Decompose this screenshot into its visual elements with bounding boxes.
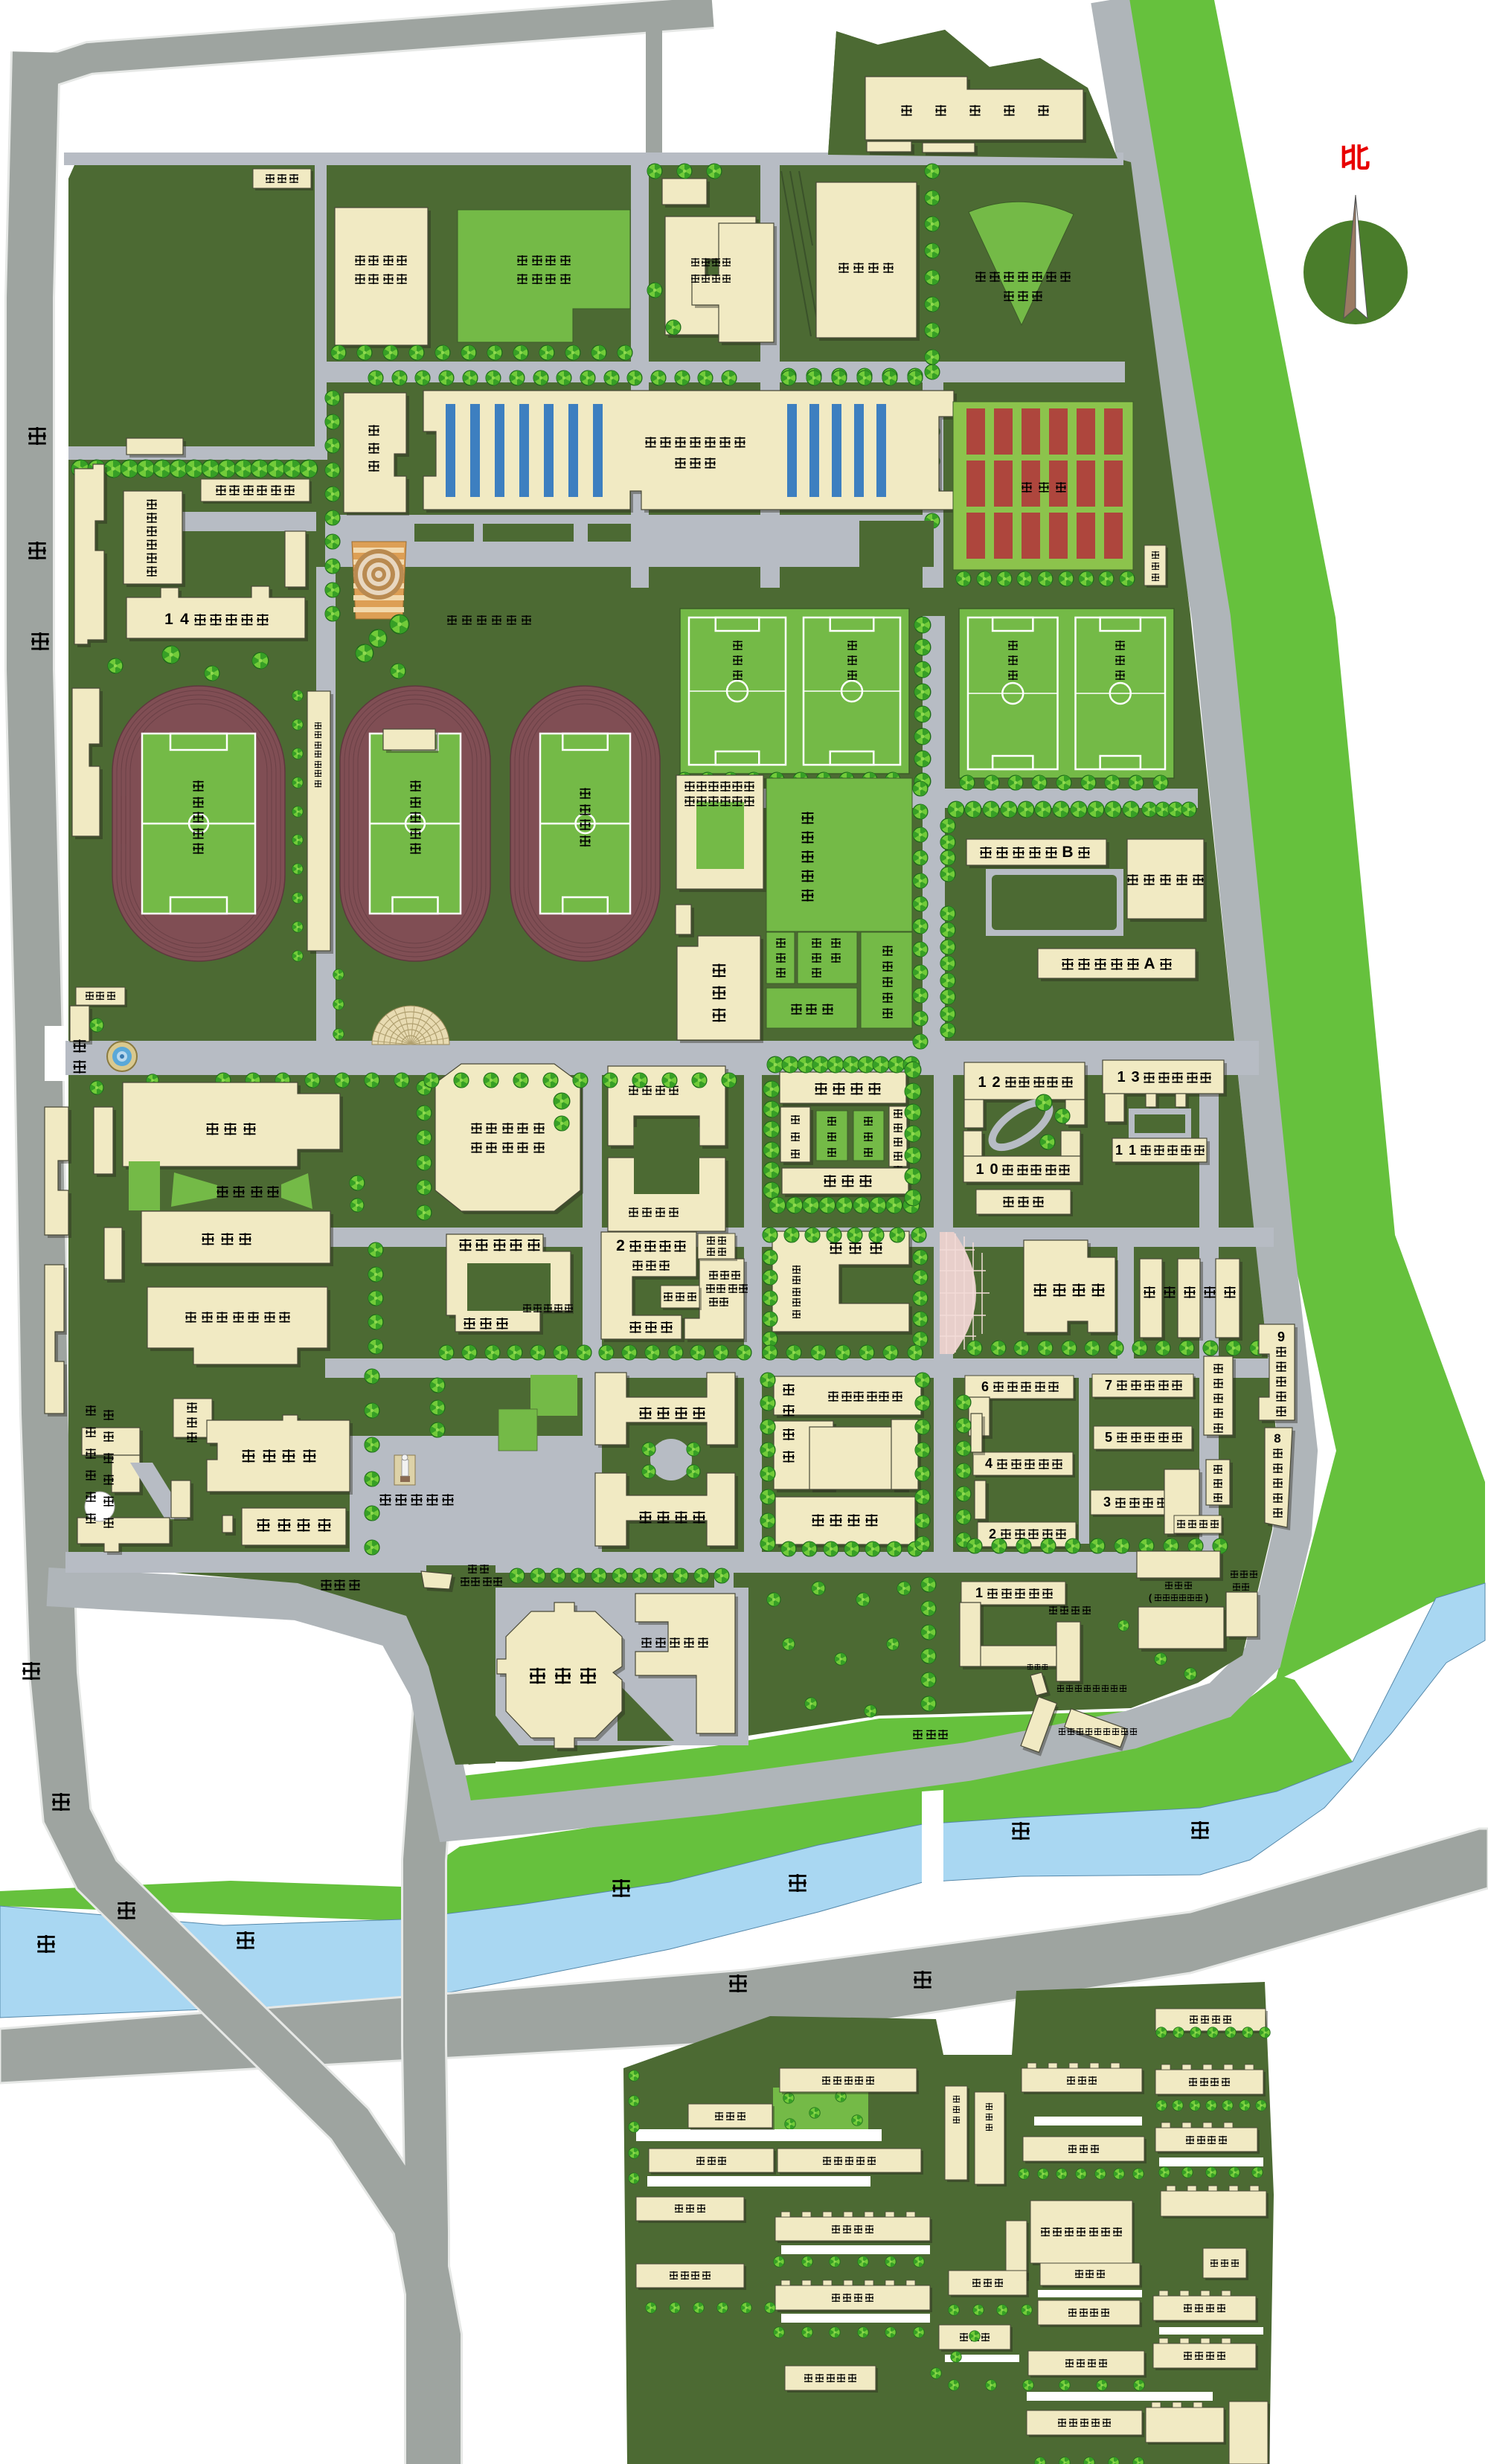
svg-text:1: 1	[1115, 1143, 1123, 1158]
svg-text:4: 4	[985, 1456, 992, 1471]
svg-text:3: 3	[1131, 1069, 1139, 1085]
svg-text:1: 1	[975, 1585, 983, 1600]
svg-text:0: 0	[990, 1161, 998, 1178]
svg-text:A: A	[1144, 955, 1155, 972]
svg-text:2: 2	[616, 1237, 625, 1254]
svg-text:1: 1	[978, 1074, 986, 1091]
svg-text:B: B	[1062, 844, 1073, 861]
svg-text:8: 8	[1274, 1431, 1280, 1446]
svg-text:): )	[1205, 1592, 1208, 1603]
svg-text:3: 3	[1103, 1495, 1111, 1509]
svg-text:1: 1	[975, 1161, 984, 1178]
svg-text:2: 2	[992, 1074, 1000, 1091]
svg-text:1: 1	[1117, 1069, 1125, 1085]
svg-text:7: 7	[1105, 1378, 1112, 1393]
svg-text:1: 1	[164, 611, 173, 628]
svg-text:9: 9	[1277, 1329, 1285, 1344]
svg-text:(: (	[1149, 1592, 1152, 1603]
svg-text:5: 5	[1105, 1430, 1112, 1445]
svg-text:4: 4	[180, 611, 189, 628]
svg-text:1: 1	[1129, 1143, 1136, 1158]
svg-text:6: 6	[981, 1379, 989, 1394]
